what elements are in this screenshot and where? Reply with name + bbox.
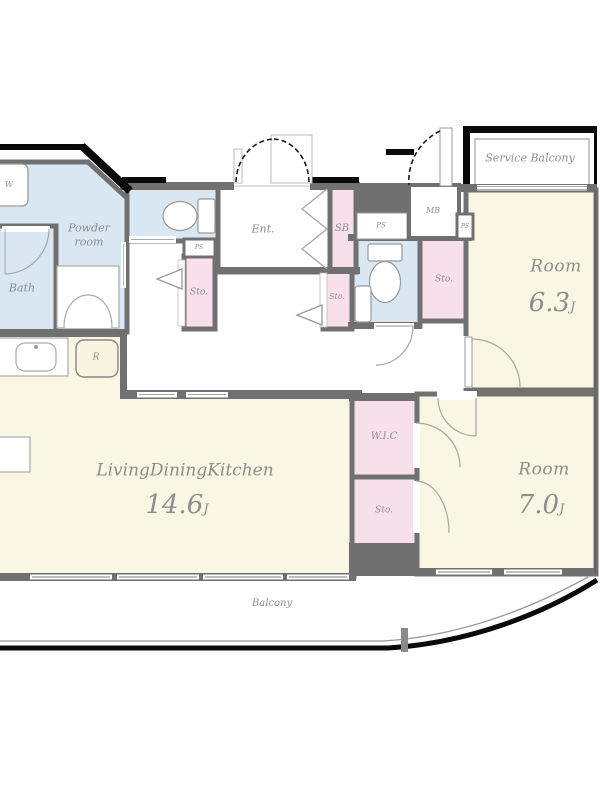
- hall-arrow-icon: [157, 269, 182, 289]
- ldk-area-unit: J: [203, 502, 208, 517]
- ldk-name-label: LivingDiningKitchen: [96, 463, 273, 480]
- room70-area-label: 7.0J: [518, 492, 565, 518]
- shoe-box-label: SB: [335, 224, 349, 234]
- powder-room-door: [121, 242, 126, 288]
- wic-label: W.I.C: [371, 432, 398, 442]
- room70-area-value: 7.0: [518, 490, 559, 520]
- entrance-label: Ent.: [251, 224, 274, 235]
- entrance-door-leaf-right: [271, 135, 312, 183]
- floor-plan: Powder room Bath W Ent. SB PS MB PS PS S…: [0, 0, 600, 800]
- room-7-0: [417, 394, 596, 574]
- ldk-area-value: 14.6: [145, 490, 203, 520]
- pipe-space-label-2: PS: [461, 224, 469, 230]
- storage-entry-label: Sto.: [329, 293, 345, 301]
- toilet-north-sliding-door: [129, 236, 176, 243]
- room63-area-label: 6.3J: [529, 290, 576, 316]
- meter-box-door: [409, 128, 452, 186]
- bath-label: Bath: [9, 283, 35, 294]
- vanity-fixture: [57, 266, 119, 328]
- balcony-area: [0, 577, 597, 652]
- entrance-door: [234, 135, 312, 190]
- meter-box-label: MB: [426, 207, 440, 215]
- service-balcony-label: Service Balcony: [485, 153, 574, 164]
- powder-room-label-line1: Powder: [68, 223, 110, 234]
- storage-east-label: Sto.: [435, 276, 453, 285]
- mb-door-swing: [409, 131, 440, 185]
- window-room63-north: [477, 185, 587, 191]
- entrance-door-leaf-left: [234, 149, 242, 183]
- toilet-north-fixture: [163, 199, 215, 233]
- entry-arrow-icon: [297, 305, 322, 325]
- room70-name-label: Room: [518, 462, 569, 479]
- storage-south-label: Sto.: [375, 507, 393, 516]
- storage-hall-label: Sto.: [190, 289, 208, 298]
- balcony-label: Balcony: [252, 599, 292, 609]
- toilet-east-door-swing: [376, 326, 413, 365]
- ldk-counter: [0, 437, 30, 472]
- ldk-windows: [30, 575, 349, 580]
- ldk-area-label: 14.6J: [145, 492, 208, 518]
- kitchen-sink-fixture: [0, 338, 68, 376]
- room63-area-unit: J: [570, 300, 575, 315]
- balcony-divider: [401, 628, 408, 652]
- refrigerator-label: R: [93, 354, 100, 363]
- washer-label: W: [5, 181, 13, 189]
- room63-name-label: Room: [530, 259, 581, 276]
- room63-door-leaf: [465, 337, 472, 387]
- room70-area-unit: J: [559, 502, 564, 517]
- pipe-space-label-1: PS: [376, 223, 386, 230]
- mb-door-leaf: [440, 128, 452, 186]
- room63-area-value: 6.3: [529, 288, 570, 318]
- toilet-east-door: [374, 323, 414, 365]
- powder-room-label-line2: room: [75, 237, 104, 248]
- pipe-space-label-3: PS: [195, 245, 203, 251]
- floor-plan-drawing: [0, 0, 600, 800]
